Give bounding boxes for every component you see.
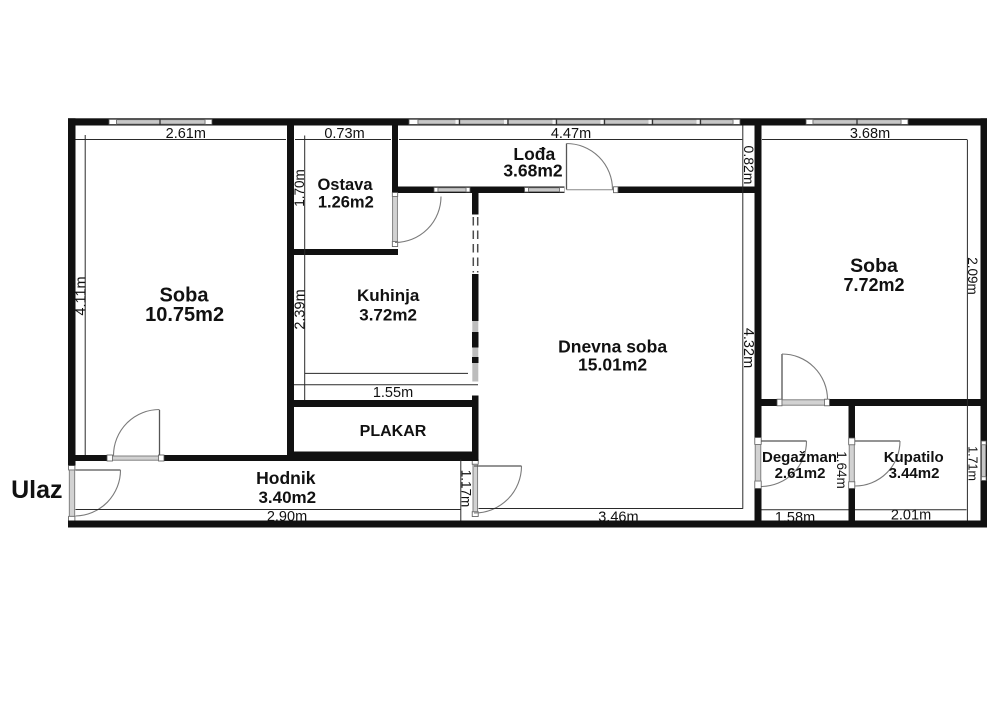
- svg-text:1.58m: 1.58m: [775, 510, 815, 526]
- svg-text:Dnevna soba: Dnevna soba: [558, 336, 667, 356]
- svg-text:2.61m2: 2.61m2: [775, 465, 826, 482]
- svg-text:2.61m: 2.61m: [166, 126, 206, 142]
- svg-text:3.40m2: 3.40m2: [258, 488, 316, 507]
- svg-text:15.01m2: 15.01m2: [578, 355, 647, 375]
- svg-text:2.09m: 2.09m: [965, 257, 980, 295]
- svg-text:1.17m: 1.17m: [459, 470, 474, 508]
- svg-text:Degažman: Degažman: [762, 449, 837, 466]
- svg-text:2.90m: 2.90m: [267, 509, 307, 525]
- svg-text:2.39m: 2.39m: [292, 289, 308, 329]
- svg-text:7.72m2: 7.72m2: [843, 275, 904, 295]
- svg-text:Soba: Soba: [850, 255, 898, 277]
- svg-text:3.68m: 3.68m: [850, 126, 890, 142]
- svg-text:2.01m: 2.01m: [891, 508, 931, 524]
- svg-text:1.71m: 1.71m: [966, 446, 980, 481]
- svg-text:1.55m: 1.55m: [373, 385, 413, 401]
- svg-text:0.73m: 0.73m: [324, 126, 364, 142]
- svg-text:Ostava: Ostava: [317, 176, 373, 194]
- svg-text:Ulaz: Ulaz: [11, 476, 62, 504]
- svg-text:Kuhinja: Kuhinja: [357, 286, 420, 305]
- svg-text:3.46m: 3.46m: [598, 510, 638, 526]
- svg-text:4.11m: 4.11m: [74, 276, 90, 315]
- svg-text:4.32m: 4.32m: [740, 328, 756, 368]
- svg-text:PLAKAR: PLAKAR: [360, 423, 427, 440]
- svg-text:Hodnik: Hodnik: [256, 468, 316, 488]
- svg-text:0.82m: 0.82m: [741, 146, 757, 185]
- svg-text:10.75m2: 10.75m2: [145, 304, 224, 326]
- svg-text:1.26m2: 1.26m2: [318, 193, 374, 211]
- svg-text:4.47m: 4.47m: [551, 126, 591, 142]
- svg-text:3.68m2: 3.68m2: [503, 161, 563, 181]
- svg-text:Kupatilo: Kupatilo: [884, 449, 944, 466]
- svg-text:3.72m2: 3.72m2: [359, 305, 417, 324]
- svg-text:1.70m: 1.70m: [292, 169, 307, 207]
- svg-text:3.44m2: 3.44m2: [889, 465, 940, 482]
